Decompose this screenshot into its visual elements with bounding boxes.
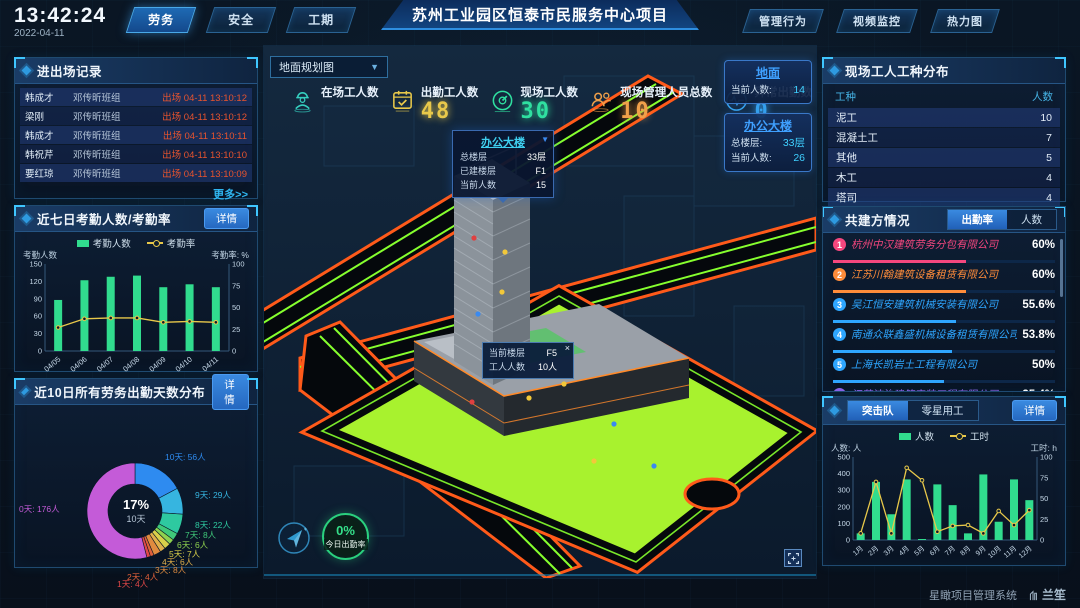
entry-exit-list: 韩成才邓传昕班组出场 04-11 13:10:12梁刚邓传昕班组出场 04-11… bbox=[15, 88, 257, 182]
panel-header: 突击队零星用工 详情 bbox=[823, 397, 1065, 425]
squad-tab-突击队[interactable]: 突击队 bbox=[848, 401, 908, 420]
worker-name: 韩成才 bbox=[25, 90, 73, 104]
exit-event: 出场 04-11 13:10:12 bbox=[143, 90, 247, 104]
tooltip-row-label: 工人人数 bbox=[489, 360, 525, 374]
partner-row: 3吴江恒安建筑机械安装有限公司55.6% bbox=[833, 297, 1055, 327]
stat-calendar-check: 出勤工人数48 bbox=[390, 84, 479, 123]
partner-row: 4南通众联鑫盛机械设备租赁有限公司53.8% bbox=[833, 327, 1055, 357]
calendar-check-icon bbox=[390, 88, 415, 113]
partners-tabs: 出勤率人数 bbox=[947, 209, 1058, 230]
worker-type-row: 木工4 bbox=[828, 168, 1060, 187]
rank-badge: 3 bbox=[833, 298, 846, 311]
nav-tabs-left: 劳务安全工期 bbox=[130, 7, 352, 33]
diamond-icon bbox=[830, 66, 840, 76]
badge-title: 办公大楼 bbox=[731, 117, 805, 136]
badge-row-label: 当前人数: bbox=[731, 83, 772, 98]
worker-icon bbox=[290, 88, 315, 113]
floor-tooltip[interactable]: × 当前楼层F5 工人人数10人 bbox=[482, 342, 574, 379]
svg-text:7月: 7月 bbox=[943, 544, 956, 557]
top-tab-劳务[interactable]: 劳务 bbox=[126, 7, 196, 33]
entry-record-row: 韩成才邓传昕班组出场 04-11 13:10:11 bbox=[20, 126, 252, 144]
svg-text:3月: 3月 bbox=[882, 544, 895, 557]
top-tab-label: 劳务 bbox=[148, 11, 174, 28]
svg-text:04/05: 04/05 bbox=[42, 355, 62, 374]
attendance-pct: 50% bbox=[1032, 359, 1055, 371]
donut-center-label: 10天 bbox=[101, 512, 171, 525]
worker-type-row: 塔司4 bbox=[828, 188, 1060, 207]
worker-count: 10 bbox=[1040, 112, 1052, 124]
top-tab-管理行为[interactable]: 管理行为 bbox=[742, 9, 824, 33]
progress-fill bbox=[833, 380, 944, 383]
table-header: 工种 人数 bbox=[823, 84, 1065, 107]
squad-tabs: 突击队零星用工 bbox=[847, 400, 979, 421]
top-tab-安全[interactable]: 安全 bbox=[206, 7, 276, 33]
detail-button[interactable]: 详情 bbox=[1012, 400, 1057, 421]
badge-row-label: 总楼层: bbox=[731, 136, 762, 151]
diamond-icon bbox=[21, 388, 29, 396]
stat-label: 现场工人数 bbox=[521, 84, 579, 100]
legend-item: 工时 bbox=[950, 429, 989, 443]
stat-gauge: 现场工人数30 bbox=[490, 84, 579, 123]
brand-logo: 兰笙 bbox=[1027, 586, 1066, 603]
svg-text:0: 0 bbox=[1040, 536, 1044, 545]
worker-count: 7 bbox=[1046, 132, 1052, 144]
legend-item: 考勤人数 bbox=[77, 236, 131, 250]
progress-track bbox=[833, 320, 1055, 323]
worker-type-row: 混凝土工7 bbox=[828, 128, 1060, 147]
partners-tab-出勤率[interactable]: 出勤率 bbox=[948, 210, 1008, 229]
donut-label-10天: 10天: 56人 bbox=[165, 451, 206, 463]
progress-track bbox=[833, 380, 1055, 383]
svg-text:75: 75 bbox=[1040, 473, 1048, 482]
partners-list: 1杭州中汉建筑劳务分包有限公司60%2江苏川翰建筑设备租赁有限公司60%3吴江恒… bbox=[823, 233, 1065, 392]
company-name: 南通众联鑫盛机械设备租赁有限公司 bbox=[851, 327, 1017, 342]
gauge-icon bbox=[490, 88, 515, 113]
donut-center: 17% 10天 bbox=[101, 497, 171, 525]
tooltip-row-value: F5 bbox=[546, 346, 557, 360]
svg-text:11月: 11月 bbox=[1002, 544, 1018, 559]
company-name: 上海长凯岩土工程有限公司 bbox=[851, 357, 1027, 372]
svg-text:25: 25 bbox=[1040, 515, 1048, 524]
svg-text:5月: 5月 bbox=[913, 544, 926, 557]
column-header: 工种 bbox=[835, 89, 1032, 104]
progress-fill bbox=[833, 350, 952, 353]
bar-swatch bbox=[899, 433, 911, 440]
badge-row-label: 当前人数: bbox=[731, 151, 772, 166]
diamond-icon bbox=[830, 215, 840, 225]
entry-record-row: 韩成才邓传昕班组出场 04-11 13:10:12 bbox=[20, 88, 252, 106]
entry-record-row: 韩祝芹邓传昕班组出场 04-11 13:10:10 bbox=[20, 145, 252, 163]
progress-track bbox=[833, 290, 1055, 293]
work-group: 邓传昕班组 bbox=[73, 166, 143, 180]
svg-text:100: 100 bbox=[837, 519, 850, 528]
tooltip-row-value: 10人 bbox=[538, 360, 557, 374]
stat-label: 出勤工人数 bbox=[421, 84, 479, 100]
svg-text:04/10: 04/10 bbox=[174, 355, 194, 374]
people-icon bbox=[589, 88, 614, 113]
right-axis-label: 工时: h bbox=[1031, 442, 1057, 454]
squad-chart: 人数 工时 人数: 人 工时: h 0100200300400500025507… bbox=[823, 425, 1065, 564]
attendance-pct: 55.6% bbox=[1022, 299, 1055, 311]
exit-event: 出场 04-11 13:10:11 bbox=[143, 128, 247, 142]
svg-text:9月: 9月 bbox=[974, 544, 987, 557]
donut-label-3天: 3天: 8人 bbox=[155, 564, 186, 576]
panel-header: 进出场记录 bbox=[15, 58, 257, 84]
partners-tab-人数[interactable]: 人数 bbox=[1007, 210, 1056, 229]
badge-row: 当前人数:14 bbox=[731, 83, 805, 98]
work-group: 邓传昕班组 bbox=[73, 90, 143, 104]
top-tab-热力图[interactable]: 热力图 bbox=[930, 9, 1000, 33]
fullscreen-icon[interactable] bbox=[784, 549, 802, 567]
svg-text:300: 300 bbox=[837, 486, 850, 495]
rank-badge: 2 bbox=[833, 268, 846, 281]
brand-icon bbox=[1027, 589, 1039, 601]
worker-type: 木工 bbox=[836, 170, 1046, 185]
worker-type-row: 泥工10 bbox=[828, 108, 1060, 127]
top-tab-label: 工期 bbox=[308, 11, 334, 28]
chart-legend: 人数 工时 bbox=[827, 430, 1061, 442]
donut-label-9天: 9天: 29人 bbox=[195, 489, 231, 501]
entry-record-row: 要红琼邓传昕班组出场 04-11 13:10:09 bbox=[20, 164, 252, 182]
scrollbar[interactable] bbox=[1060, 239, 1063, 297]
top-tab-label: 安全 bbox=[228, 11, 254, 28]
svg-text:04/11: 04/11 bbox=[200, 355, 220, 374]
svg-text:6月: 6月 bbox=[928, 544, 941, 557]
rank-badge: 6 bbox=[833, 388, 846, 392]
partner-row: 2江苏川翰建筑设备租赁有限公司60% bbox=[833, 267, 1055, 297]
tooltip-row-label: 当前楼层 bbox=[489, 346, 525, 360]
svg-text:25: 25 bbox=[232, 325, 240, 334]
panel-partners: 共建方情况 出勤率人数 1杭州中汉建筑劳务分包有限公司60%2江苏川翰建筑设备租… bbox=[822, 206, 1066, 392]
stat-people: 现场管理人员总数10 bbox=[589, 84, 712, 123]
map-view-select-value: 地面规划图 bbox=[279, 59, 334, 75]
badge-row-value: 33层 bbox=[783, 136, 805, 151]
work-group: 邓传昕班组 bbox=[73, 109, 143, 123]
svg-text:10月: 10月 bbox=[986, 544, 1002, 560]
left-axis-label: 考勤人数 bbox=[23, 249, 57, 261]
top-tab-视频监控[interactable]: 视频监控 bbox=[836, 9, 918, 33]
top-tab-工期[interactable]: 工期 bbox=[286, 7, 356, 33]
badge-row: 当前人数:26 bbox=[731, 151, 805, 166]
panel-title: 现场工人工种分布 bbox=[845, 61, 949, 80]
more-link[interactable]: 更多>> bbox=[15, 183, 257, 202]
partner-row: 5上海长凯岩土工程有限公司50% bbox=[833, 357, 1055, 387]
top-tab-label: 视频监控 bbox=[853, 13, 901, 29]
worker-type: 塔司 bbox=[836, 190, 1046, 205]
top-tab-label: 热力图 bbox=[947, 13, 983, 29]
svg-text:30: 30 bbox=[34, 329, 42, 338]
svg-text:04/06: 04/06 bbox=[69, 355, 89, 374]
location-badges: 地面当前人数:14办公大楼总楼层:33层当前人数:26 bbox=[724, 60, 812, 172]
worker-name: 梁刚 bbox=[25, 109, 73, 123]
nav-tabs-right: 管理行为视频监控热力图 bbox=[746, 9, 996, 33]
badge-办公大楼: 办公大楼总楼层:33层当前人数:26 bbox=[724, 113, 812, 172]
attendance-pct: 60% bbox=[1032, 269, 1055, 281]
stat-label: 现场管理人员总数 bbox=[620, 84, 712, 100]
svg-text:2月: 2月 bbox=[867, 544, 880, 557]
footer: 星瞰项目管理系统 兰笙 bbox=[929, 586, 1066, 603]
attendance-pct: 35.4% bbox=[1022, 389, 1055, 393]
right-axis-label: 考勤率: % bbox=[211, 249, 249, 261]
panel-squad: 突击队零星用工 详情 人数 工时 人数: 人 工时: h 01002003004… bbox=[822, 396, 1066, 566]
worker-type-row: 其他5 bbox=[828, 148, 1060, 167]
detail-button[interactable]: 详情 bbox=[204, 208, 249, 229]
worker-name: 韩祝芹 bbox=[25, 147, 73, 161]
worker-count: 4 bbox=[1046, 192, 1052, 204]
chart-legend: 考勤人数 考勤率 bbox=[19, 237, 253, 249]
progress-track bbox=[833, 350, 1055, 353]
close-icon[interactable]: × bbox=[565, 343, 570, 353]
badge-row-value: 14 bbox=[793, 83, 805, 98]
panel-header: 近七日考勤人数/考勤率 详情 bbox=[15, 206, 257, 232]
svg-text:12月: 12月 bbox=[1017, 544, 1033, 560]
svg-text:04/09: 04/09 bbox=[147, 355, 167, 374]
svg-text:8月: 8月 bbox=[959, 544, 972, 557]
worker-name: 韩成才 bbox=[25, 128, 73, 142]
worker-name: 要红琼 bbox=[25, 166, 73, 180]
work-group: 邓传昕班组 bbox=[73, 128, 143, 142]
worker-type: 泥工 bbox=[836, 110, 1040, 125]
panel-header: 现场工人工种分布 bbox=[823, 58, 1065, 84]
worker-count: 4 bbox=[1046, 172, 1052, 184]
company-name: 江苏洁治建筑安装工程有限公司 bbox=[851, 387, 1017, 392]
panel-title: 近七日考勤人数/考勤率 bbox=[37, 209, 171, 228]
tooltip-row-label: 总楼层 bbox=[460, 150, 487, 164]
company-name: 杭州中汉建筑劳务分包有限公司 bbox=[851, 237, 1027, 252]
stat-worker: 在场工人数 bbox=[290, 84, 379, 123]
left-axis-label: 人数: 人 bbox=[831, 442, 861, 454]
svg-text:04/07: 04/07 bbox=[95, 355, 115, 374]
progress-fill bbox=[833, 260, 966, 263]
donut-center-value: 17% bbox=[101, 497, 171, 512]
attendance-chart: 考勤人数 考勤率 考勤人数 考勤率: % 0306090120150025507… bbox=[15, 232, 257, 377]
panel-header: 近10日所有劳务出勤天数分布 详情 bbox=[15, 379, 257, 405]
building-tooltip[interactable]: 办公大楼 ▼ 总楼层33层 已建楼层F1 当前人数15 bbox=[452, 130, 554, 198]
donut-chart: 17% 10天 10天: 56人9天: 29人8天: 22人7天: 8人6天: … bbox=[15, 405, 257, 569]
tooltip-row-label: 已建楼层 bbox=[460, 164, 496, 178]
panel-attendance-days-distribution: 近10日所有劳务出勤天数分布 详情 17% 10天 10天: 56人9天: 29… bbox=[14, 378, 258, 568]
system-name: 星瞰项目管理系统 bbox=[929, 587, 1017, 603]
bar-swatch bbox=[77, 240, 89, 247]
svg-text:60: 60 bbox=[34, 312, 42, 321]
stat-value: 48 bbox=[421, 100, 479, 123]
panel-title: 共建方情况 bbox=[845, 210, 910, 229]
partner-row: 1杭州中汉建筑劳务分包有限公司60% bbox=[833, 237, 1055, 267]
stat-value: 10 bbox=[620, 100, 712, 123]
attendance-pct: 53.8% bbox=[1022, 329, 1055, 341]
exit-event: 出场 04-11 13:10:10 bbox=[143, 147, 247, 161]
top-tab-label: 管理行为 bbox=[759, 13, 807, 29]
line-swatch bbox=[147, 242, 163, 244]
svg-text:04/08: 04/08 bbox=[121, 355, 141, 374]
tooltip-row-value: F1 bbox=[535, 164, 546, 178]
today-attendance-ring: 0% 今日出勤率 bbox=[322, 513, 369, 560]
svg-text:4月: 4月 bbox=[897, 544, 910, 557]
tooltip-row-label: 当前人数 bbox=[460, 178, 496, 192]
panel-title: 进出场记录 bbox=[37, 61, 102, 80]
partner-row: 6江苏洁治建筑安装工程有限公司35.4% bbox=[833, 387, 1055, 392]
worker-types-list: 泥工10混凝土工7其他5木工4塔司4 bbox=[823, 108, 1065, 207]
exit-event: 出场 04-11 13:10:09 bbox=[143, 166, 247, 180]
top-bar: 13:42:24 2022-04-11 劳务安全工期 苏州工业园区恒泰市民服务中… bbox=[0, 0, 1080, 42]
stat-value: 30 bbox=[521, 100, 579, 123]
line-swatch bbox=[950, 435, 966, 437]
svg-text:75: 75 bbox=[232, 281, 240, 290]
diamond-icon bbox=[22, 214, 32, 224]
squad-tab-零星用工[interactable]: 零星用工 bbox=[908, 401, 978, 420]
current-date: 2022-04-11 bbox=[14, 28, 106, 39]
legend-item: 考勤率 bbox=[147, 236, 196, 250]
diamond-icon bbox=[22, 66, 32, 76]
panel-weekly-attendance: 近七日考勤人数/考勤率 详情 考勤人数 考勤率 考勤人数 考勤率: % 0306… bbox=[14, 205, 258, 372]
panel-title: 近10日所有劳务出勤天数分布 bbox=[34, 382, 205, 401]
rank-badge: 1 bbox=[833, 238, 846, 251]
company-name: 江苏川翰建筑设备租赁有限公司 bbox=[851, 267, 1027, 282]
svg-text:0: 0 bbox=[846, 536, 850, 545]
panel-worker-types: 现场工人工种分布 工种 人数 泥工10混凝土工7其他5木工4塔司4 bbox=[822, 57, 1066, 202]
company-name: 吴江恒安建筑机械安装有限公司 bbox=[851, 297, 1017, 312]
building-tooltip-title: 办公大楼 ▼ bbox=[460, 134, 546, 150]
diamond-icon bbox=[830, 406, 840, 416]
entry-record-row: 梁刚邓传昕班组出场 04-11 13:10:12 bbox=[20, 107, 252, 125]
tooltip-row-value: 15 bbox=[536, 178, 546, 192]
svg-text:50: 50 bbox=[232, 303, 240, 312]
svg-text:50: 50 bbox=[1040, 494, 1048, 503]
svg-text:200: 200 bbox=[837, 502, 850, 511]
work-group: 邓传昕班组 bbox=[73, 147, 143, 161]
chevron-down-icon: ▼ bbox=[370, 62, 379, 72]
progress-fill bbox=[833, 320, 956, 323]
svg-text:400: 400 bbox=[837, 469, 850, 478]
today-attendance-label: 今日出勤率 bbox=[324, 539, 368, 550]
worker-type: 其他 bbox=[836, 150, 1046, 165]
progress-fill bbox=[833, 290, 966, 293]
donut-label-0天: 0天: 176人 bbox=[19, 503, 60, 515]
today-attendance-value: 0% bbox=[336, 524, 355, 537]
current-time: 13:42:24 bbox=[14, 4, 106, 28]
panel-header: 共建方情况 出勤率人数 bbox=[823, 207, 1065, 233]
rank-badge: 4 bbox=[833, 328, 846, 341]
worker-count: 5 bbox=[1046, 152, 1052, 164]
exit-event: 出场 04-11 13:10:12 bbox=[143, 109, 247, 123]
panel-entry-exit-records: 进出场记录 韩成才邓传昕班组出场 04-11 13:10:12梁刚邓传昕班组出场… bbox=[14, 57, 258, 199]
worker-type: 混凝土工 bbox=[836, 130, 1046, 145]
badge-地面: 地面当前人数:14 bbox=[724, 60, 812, 104]
tooltip-row-value: 33层 bbox=[527, 150, 546, 164]
legend-item: 人数 bbox=[899, 429, 934, 443]
compass-icon[interactable] bbox=[276, 520, 312, 556]
badge-row-value: 26 bbox=[793, 151, 805, 166]
clock: 13:42:24 2022-04-11 bbox=[14, 4, 106, 39]
chevron-down-icon[interactable]: ▼ bbox=[541, 135, 549, 144]
page-title-banner: 苏州工业园区恒泰市民服务中心项目 bbox=[381, 0, 699, 30]
stat-label: 在场工人数 bbox=[321, 84, 379, 100]
svg-text:0: 0 bbox=[232, 347, 236, 356]
badge-title: 地面 bbox=[731, 64, 805, 83]
attendance-pct: 60% bbox=[1032, 239, 1055, 251]
svg-text:1月: 1月 bbox=[851, 544, 864, 557]
dashboard-screen: 13:42:24 2022-04-11 劳务安全工期 苏州工业园区恒泰市民服务中… bbox=[0, 0, 1080, 608]
rank-badge: 5 bbox=[833, 358, 846, 371]
page-title: 苏州工业园区恒泰市民服务中心项目 bbox=[412, 4, 668, 25]
progress-track bbox=[833, 260, 1055, 263]
column-header: 人数 bbox=[1032, 89, 1053, 104]
map-view-select[interactable]: 地面规划图 ▼ bbox=[270, 56, 388, 78]
svg-text:90: 90 bbox=[34, 294, 42, 303]
badge-row: 总楼层:33层 bbox=[731, 136, 805, 151]
svg-text:0: 0 bbox=[38, 347, 42, 356]
donut-label-1天: 1天: 4人 bbox=[117, 578, 148, 590]
svg-text:120: 120 bbox=[29, 277, 42, 286]
